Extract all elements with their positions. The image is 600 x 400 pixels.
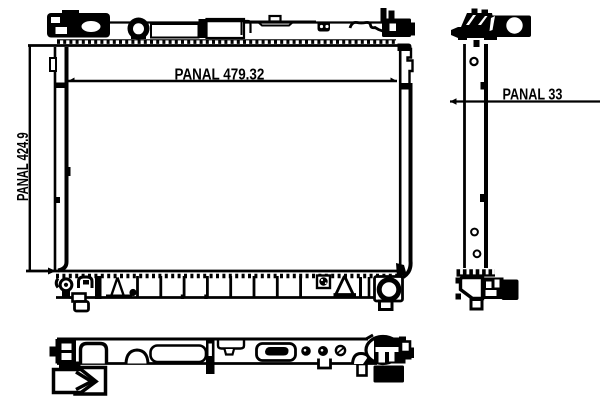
svg-text:PANAL 33: PANAL 33 <box>503 86 563 104</box>
svg-text:PANAL 424.9: PANAL 424.9 <box>13 132 32 201</box>
svg-text:PANAL 479.32: PANAL 479.32 <box>175 66 265 83</box>
